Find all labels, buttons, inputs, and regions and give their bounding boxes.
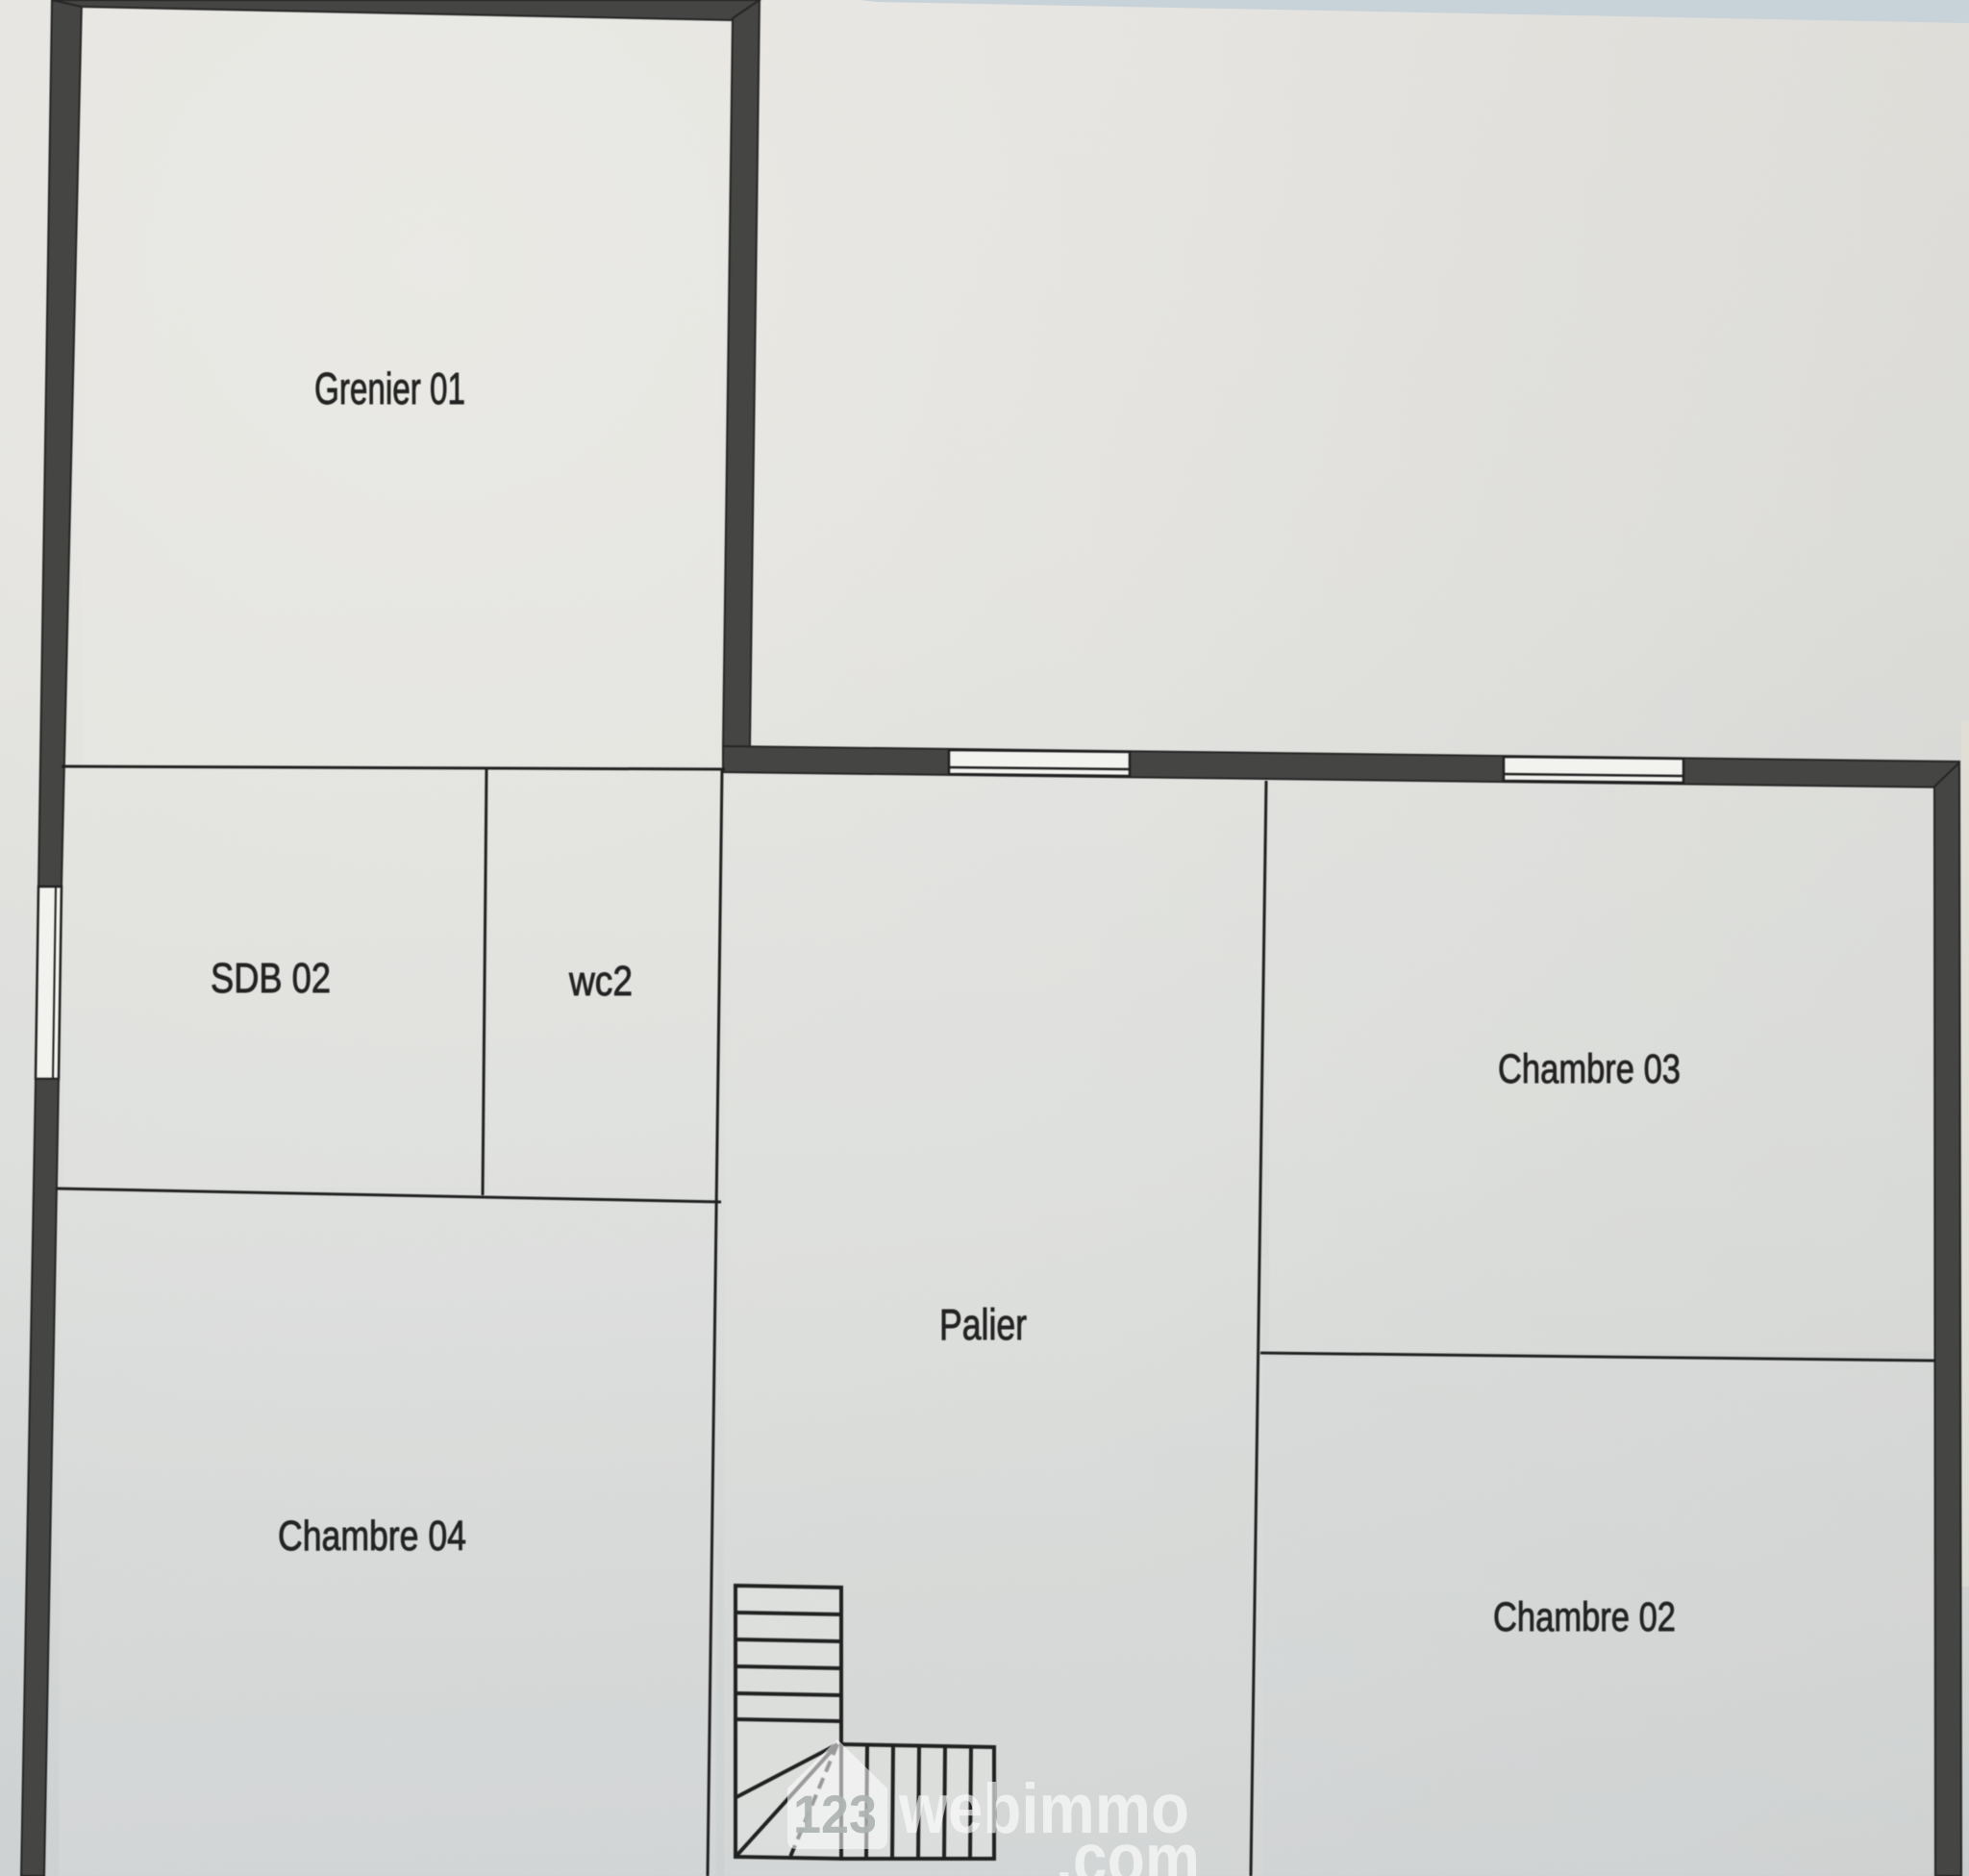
svg-text:Grenier 01: Grenier 01 — [314, 363, 465, 413]
svg-text:Chambre 03: Chambre 03 — [1498, 1046, 1681, 1092]
svg-text:wc2: wc2 — [568, 958, 633, 1005]
svg-text:SDB 02: SDB 02 — [211, 955, 331, 1002]
svg-text:123: 123 — [793, 1784, 877, 1844]
svg-text:Chambre 04: Chambre 04 — [278, 1513, 466, 1560]
svg-text:.com: .com — [1056, 1820, 1200, 1876]
svg-text:Chambre 02: Chambre 02 — [1493, 1594, 1676, 1640]
svg-text:Palier: Palier — [939, 1300, 1027, 1349]
